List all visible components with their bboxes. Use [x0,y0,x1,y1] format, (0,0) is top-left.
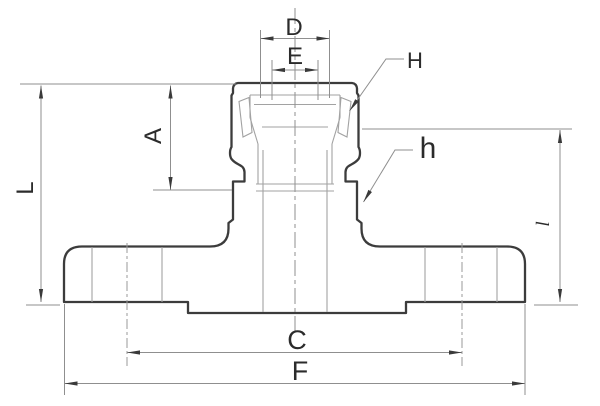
dimension-l: l [533,130,560,302]
dimension-E: E [272,43,318,70]
leader-h: h [364,132,437,202]
leader-H: H [350,48,423,111]
dim-label-A: A [140,128,167,144]
dim-label-L: L [12,181,39,194]
drawing-page: D E L A l C F H [0,0,600,406]
dim-label-F: F [292,356,309,386]
dimension-D: D [261,14,330,41]
dim-label-E: E [287,43,303,70]
leaders: H h [350,48,437,202]
callout-label-H: H [407,48,423,73]
dim-label-l: l [533,221,554,226]
technical-drawing-canvas: D E L A l C F H [0,0,600,406]
dimension-F: F [65,356,526,386]
dimension-L: L [12,86,41,303]
dim-label-C: C [287,325,307,355]
dim-label-D: D [285,14,302,41]
callout-label-h: h [420,132,437,165]
dimension-A: A [140,86,171,191]
dimension-C: C [127,325,462,355]
dimensions: D E L A l C F [12,14,560,386]
